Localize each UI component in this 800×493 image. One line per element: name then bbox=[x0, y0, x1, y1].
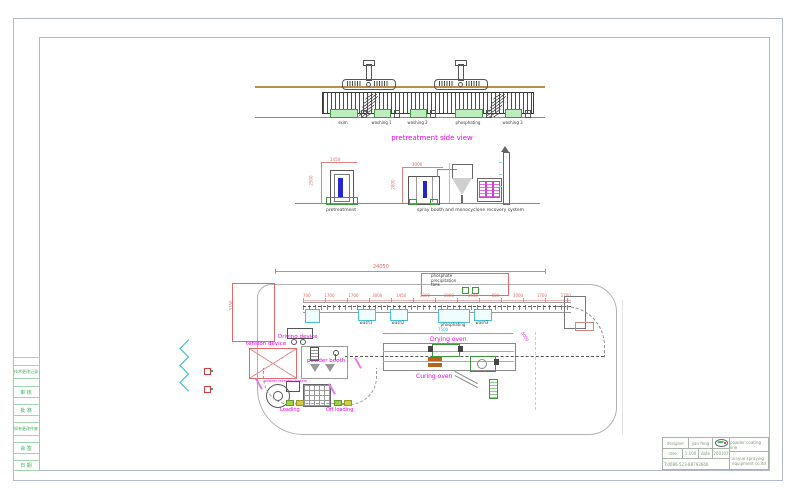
station-label: washing 3 bbox=[497, 120, 528, 125]
stack-tick bbox=[499, 162, 502, 163]
exhaust-fan-icon bbox=[366, 82, 371, 87]
company-logo-icon bbox=[715, 439, 728, 447]
duct-line bbox=[437, 169, 438, 177]
drawing-sheet: 技术更改记录 审 核 批 准 如有更改作废 会 签 日 期 skim bbox=[0, 0, 800, 493]
dim-line-oven bbox=[383, 333, 513, 334]
off-loading-label: Off loading bbox=[326, 407, 353, 413]
burner-motor bbox=[458, 346, 463, 352]
hanger-mark bbox=[334, 400, 342, 406]
filter-cartridge bbox=[486, 181, 493, 198]
datum-symbol bbox=[204, 386, 211, 393]
pump-icon bbox=[394, 110, 400, 118]
monorail-beam bbox=[255, 86, 545, 88]
station-label: phosphating bbox=[453, 120, 483, 125]
date-label-cell: date bbox=[699, 449, 713, 459]
strip-row bbox=[13, 379, 39, 387]
dim-text-oven: 7500 bbox=[438, 327, 448, 332]
tank-phosphating bbox=[455, 109, 483, 118]
strip-row bbox=[13, 398, 39, 405]
burner-motor bbox=[494, 359, 499, 365]
dim-chain-line bbox=[303, 300, 571, 301]
dim-line bbox=[402, 167, 443, 168]
phone-cell: T:0086-523-88793666 bbox=[663, 459, 730, 470]
pump-icon bbox=[472, 287, 479, 294]
dim-tick bbox=[275, 269, 276, 274]
exhaust-stack bbox=[366, 64, 372, 81]
booth-hopper bbox=[325, 364, 335, 372]
driving-device-label: Driving device bbox=[278, 334, 318, 340]
dim-line bbox=[321, 162, 357, 163]
operator-icon bbox=[333, 350, 339, 356]
drying-oven-label: Drying oven bbox=[430, 336, 467, 343]
burner-motor bbox=[428, 346, 433, 352]
exhaust-stack-cap bbox=[455, 60, 467, 66]
pump-icon bbox=[361, 110, 367, 118]
exhaust-silencer bbox=[347, 81, 362, 86]
dim-line bbox=[321, 162, 322, 203]
strip-row: 技术更改记录 bbox=[13, 366, 39, 379]
dim-line bbox=[402, 167, 403, 203]
title-block: designer jian feng rate 1:100 date 20010… bbox=[662, 437, 769, 470]
logo-green-leaf bbox=[717, 441, 724, 443]
tank-washing1 bbox=[374, 109, 391, 118]
strip-row: 日 期 bbox=[13, 461, 39, 471]
cyclone-top bbox=[452, 164, 473, 179]
filter-cartridge bbox=[479, 181, 486, 198]
dim-tick bbox=[545, 269, 546, 274]
conveyor-centerline bbox=[303, 306, 571, 307]
tension-device-label: tension device bbox=[246, 341, 286, 347]
exhaust-silencer bbox=[439, 81, 454, 86]
designer-value-cell: jian feng bbox=[689, 438, 713, 449]
cyclone-outlet bbox=[461, 195, 463, 203]
dim-text: 2800 bbox=[391, 179, 396, 189]
tank-skim bbox=[330, 109, 358, 118]
logo-cell bbox=[713, 438, 730, 449]
cyclone-cone bbox=[452, 178, 472, 195]
hanger-mark bbox=[344, 400, 352, 406]
strip-row bbox=[13, 436, 39, 443]
dim-line-total bbox=[275, 271, 545, 272]
tank-washing3 bbox=[505, 109, 522, 118]
plan-tank-label: wash1 bbox=[355, 320, 377, 325]
strip-row bbox=[13, 454, 39, 461]
logo-red-dot bbox=[724, 442, 726, 444]
burner-segment bbox=[428, 357, 442, 361]
plan-tank-label: wash3 bbox=[471, 320, 493, 325]
station-label: washing 2 bbox=[402, 120, 433, 125]
stack-tick bbox=[499, 174, 502, 175]
dim-text: 3000 bbox=[412, 162, 422, 167]
dim-text: 1450 bbox=[330, 157, 340, 162]
strip-row: 如有更改作废 bbox=[13, 423, 39, 436]
strip-row: 会 签 bbox=[13, 443, 39, 454]
phosphate-label-line3: tank bbox=[431, 283, 456, 288]
exhaust-fan-icon bbox=[458, 82, 463, 87]
datum-dot bbox=[211, 388, 213, 390]
booth-hopper bbox=[310, 364, 320, 372]
side-view-title: pretreatment side view bbox=[352, 134, 512, 142]
exit-device bbox=[489, 379, 498, 399]
station-label: skim bbox=[330, 120, 356, 125]
date-value-cell: 200107 bbox=[713, 449, 730, 459]
phosphate-tank-label: phosphate precipitation tank bbox=[431, 274, 456, 288]
strip-row: 批 准 bbox=[13, 405, 39, 416]
product-cell: powder coating line bbox=[730, 438, 768, 452]
tank-washing2 bbox=[410, 109, 427, 118]
booth-foot bbox=[409, 199, 417, 205]
hanger-mark bbox=[296, 400, 304, 406]
booth-foot bbox=[430, 199, 438, 205]
rate-value-cell: 1:100 bbox=[683, 449, 699, 459]
revision-strip: 技术更改记录 审 核 批 准 如有更改作废 会 签 日 期 bbox=[13, 357, 39, 471]
grid-line bbox=[535, 332, 536, 410]
elevation-left-label: pretreatment bbox=[321, 208, 361, 213]
pump-icon bbox=[486, 110, 492, 118]
exhaust-silencer bbox=[374, 81, 389, 86]
hanger-mark bbox=[286, 400, 294, 406]
strip-row bbox=[13, 358, 39, 366]
exhaust-silencer bbox=[466, 81, 481, 86]
rate-label-cell: rate bbox=[663, 449, 683, 459]
pump-icon bbox=[430, 110, 436, 118]
datum-dot bbox=[211, 370, 213, 372]
company-cell: xinyue spraying equipment co.ltd bbox=[730, 452, 768, 470]
burner-segment bbox=[428, 363, 442, 367]
loading-label: Loading bbox=[280, 407, 300, 413]
pretreatment-conveyor bbox=[303, 302, 571, 313]
stack bbox=[503, 152, 510, 205]
strip-row: 审 核 bbox=[13, 387, 39, 398]
pump-icon bbox=[525, 110, 531, 118]
stack-tick bbox=[499, 186, 502, 187]
designer-label-cell: designer bbox=[663, 438, 689, 449]
dim-text: 2500 bbox=[309, 175, 314, 185]
station-label: washing 1 bbox=[366, 120, 397, 125]
drying-burner-unit bbox=[432, 344, 460, 357]
dim-text-left: 3350 bbox=[229, 300, 234, 310]
powder-booth-label: powder booth bbox=[307, 358, 345, 364]
pretreatment-base bbox=[326, 197, 358, 205]
curing-oven-label: Curing oven bbox=[416, 373, 452, 380]
workpiece-bar bbox=[338, 178, 343, 197]
datum-symbol bbox=[204, 368, 211, 375]
pretreatment-zone-outline bbox=[232, 283, 275, 342]
elevation-right-label: spray booth and monocyclone recovery sys… bbox=[408, 208, 533, 213]
strip-row bbox=[13, 416, 39, 423]
stack-arrow-icon bbox=[501, 146, 509, 152]
plan-tank-skim bbox=[305, 309, 320, 323]
filter-cartridge bbox=[493, 181, 500, 198]
exhaust-stack bbox=[458, 64, 464, 81]
company-line2: equipment co.ltd bbox=[732, 461, 766, 466]
fan-icon bbox=[477, 359, 487, 369]
workpiece-bar bbox=[423, 181, 427, 198]
plan-tank-label: wash2 bbox=[387, 320, 409, 325]
exhaust-stack-cap bbox=[363, 60, 375, 66]
duct-line-cyan bbox=[449, 163, 450, 203]
plan-tank-phosphating bbox=[438, 309, 470, 323]
grid-line bbox=[622, 300, 623, 435]
pump-icon bbox=[462, 287, 469, 294]
ground-line-top bbox=[255, 117, 545, 118]
dim-text-total: 24050 bbox=[372, 264, 390, 270]
